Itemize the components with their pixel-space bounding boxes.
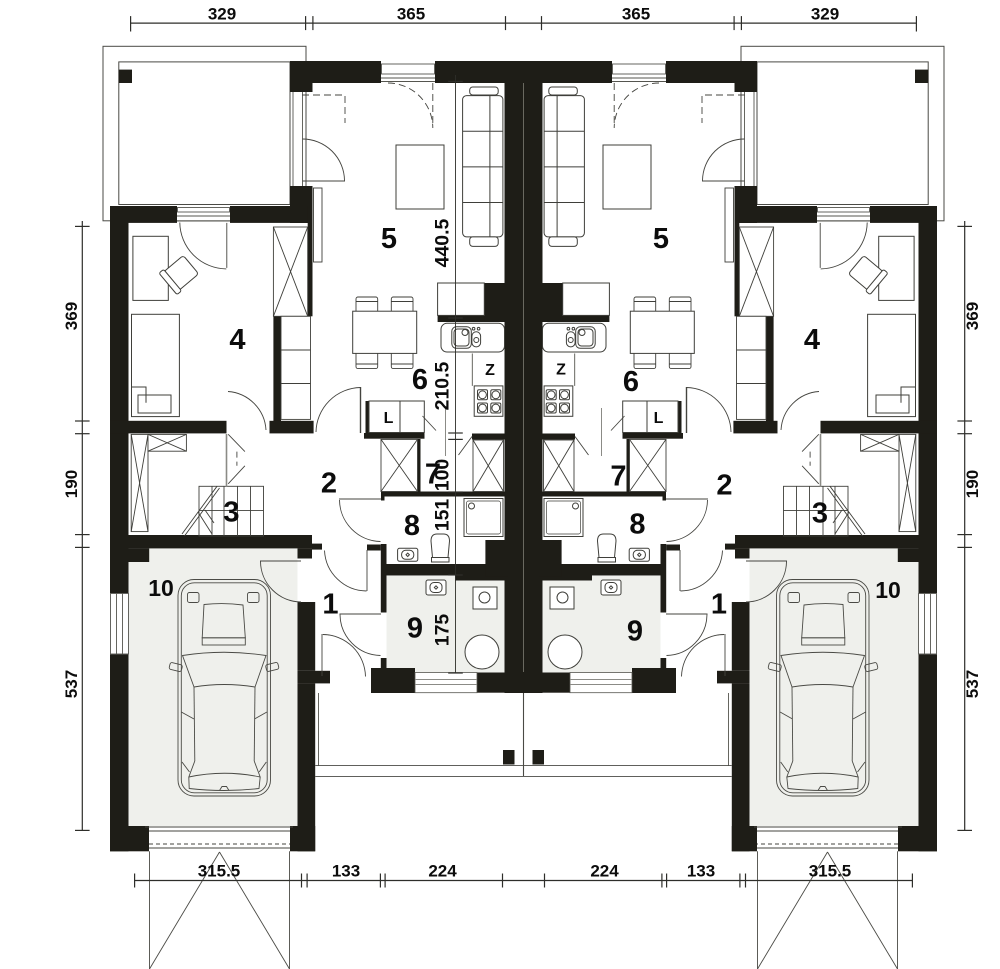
- svg-text:4: 4: [229, 324, 245, 356]
- svg-text:8: 8: [629, 509, 645, 541]
- svg-text:151: 151: [432, 499, 454, 532]
- svg-text:175: 175: [432, 614, 454, 647]
- svg-text:7: 7: [610, 461, 626, 493]
- svg-text:8: 8: [404, 510, 420, 542]
- svg-text:2: 2: [321, 468, 337, 500]
- svg-text:10: 10: [148, 575, 174, 601]
- svg-text:1: 1: [711, 589, 727, 621]
- svg-text:3: 3: [812, 498, 828, 530]
- svg-text:440.5: 440.5: [432, 218, 454, 267]
- svg-text:6: 6: [412, 364, 428, 396]
- svg-text:L: L: [384, 410, 394, 427]
- svg-text:365: 365: [622, 5, 650, 24]
- svg-text:133: 133: [332, 862, 360, 881]
- svg-text:224: 224: [428, 862, 457, 881]
- svg-text:369: 369: [62, 302, 81, 330]
- svg-text:Z: Z: [556, 362, 566, 379]
- svg-text:315.5: 315.5: [198, 862, 241, 881]
- svg-text:315.5: 315.5: [809, 862, 852, 881]
- svg-text:1: 1: [322, 589, 338, 621]
- svg-text:210.5: 210.5: [432, 361, 454, 410]
- svg-text:4: 4: [804, 324, 820, 356]
- svg-text:329: 329: [208, 5, 236, 24]
- svg-text:224: 224: [590, 862, 619, 881]
- svg-text:365: 365: [397, 5, 425, 24]
- svg-text:Z: Z: [485, 362, 495, 379]
- svg-text:6: 6: [623, 366, 639, 398]
- svg-text:10: 10: [875, 577, 901, 603]
- svg-text:L: L: [654, 410, 664, 427]
- svg-text:133: 133: [687, 862, 715, 881]
- svg-text:537: 537: [62, 670, 81, 698]
- svg-text:3: 3: [223, 497, 239, 529]
- svg-text:9: 9: [407, 613, 423, 645]
- svg-text:369: 369: [963, 302, 982, 330]
- svg-text:2: 2: [716, 470, 732, 502]
- svg-text:5: 5: [381, 223, 397, 255]
- svg-text:5: 5: [653, 223, 669, 255]
- svg-text:190: 190: [963, 470, 982, 498]
- svg-text:190: 190: [62, 470, 81, 498]
- svg-text:537: 537: [963, 670, 982, 698]
- svg-text:7: 7: [425, 459, 441, 491]
- svg-text:9: 9: [627, 616, 643, 648]
- svg-text:329: 329: [811, 5, 839, 24]
